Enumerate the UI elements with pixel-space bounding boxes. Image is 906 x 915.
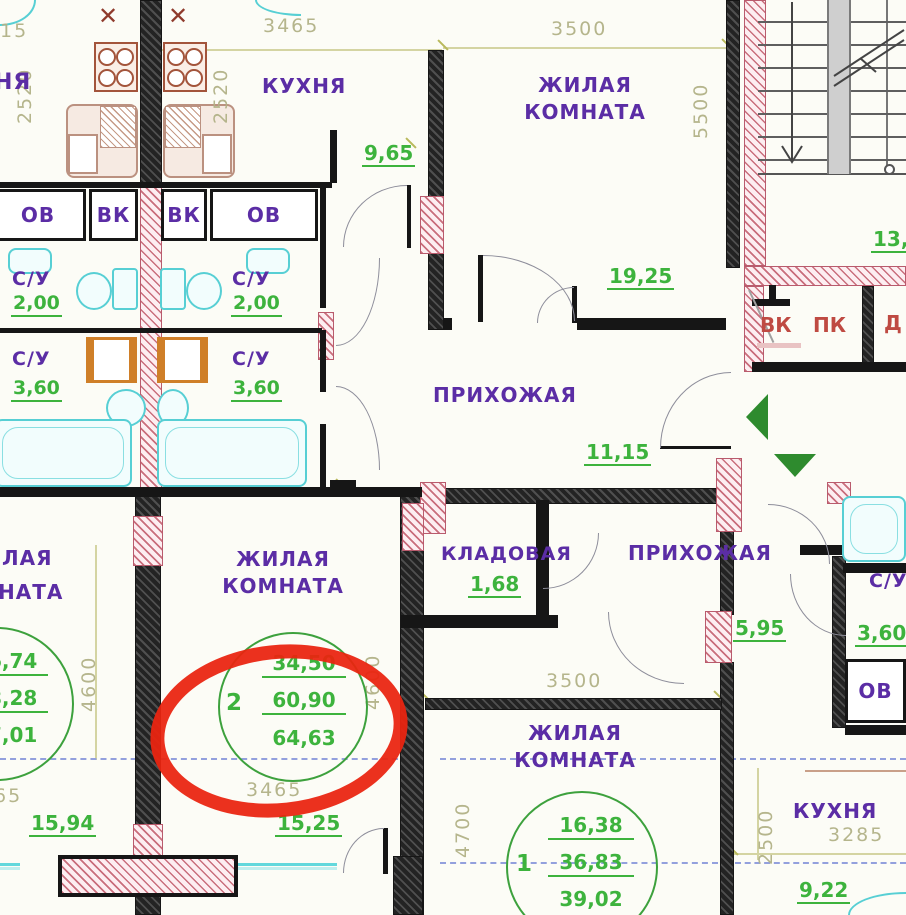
shaft-label: ОВ bbox=[858, 679, 892, 703]
apartment-number: 1 bbox=[516, 851, 532, 877]
room-label-su-right: С/У bbox=[869, 570, 906, 592]
dimension-value: 3285 bbox=[828, 824, 884, 846]
dimension-value: 65 bbox=[0, 785, 22, 807]
room-label-line: ЖИЛАЯ bbox=[538, 72, 632, 99]
dimension-value: 2520 bbox=[210, 44, 232, 124]
wall bbox=[752, 362, 906, 372]
stamp-value: 7,01 bbox=[0, 724, 48, 748]
area-value: 3,60 bbox=[11, 379, 62, 402]
room-label-line: КОМНАТА bbox=[524, 99, 646, 126]
room-label-living-left-partial: ЛАЯ bbox=[2, 546, 53, 570]
wall bbox=[330, 130, 337, 183]
door-arc bbox=[343, 828, 384, 873]
area-value: 15,94 bbox=[29, 813, 96, 837]
dimension-line bbox=[443, 47, 733, 49]
door-arc bbox=[608, 612, 684, 684]
area-value: 11,15 bbox=[584, 442, 651, 466]
room-label-kitchen: КУХНЯ bbox=[262, 74, 346, 98]
shaft-box-vk: ВК bbox=[161, 189, 207, 241]
corner-sink-symbol bbox=[848, 892, 906, 915]
wall bbox=[444, 488, 722, 504]
stamp-value: 16,38 bbox=[548, 814, 634, 840]
bathtub-symbol bbox=[157, 419, 307, 487]
wall bbox=[0, 487, 422, 497]
wall bbox=[720, 662, 734, 915]
door-arc bbox=[790, 574, 846, 636]
stair-direction-arrow bbox=[772, 0, 812, 180]
window-sill bbox=[0, 863, 20, 866]
wall bbox=[425, 698, 722, 710]
pilaster bbox=[133, 516, 163, 566]
room-label-su: С/У bbox=[232, 268, 271, 290]
shaft-box-ov: ОВ bbox=[0, 189, 86, 241]
toilet-symbol bbox=[186, 272, 222, 310]
bathtub-symbol bbox=[0, 419, 132, 487]
wall bbox=[769, 285, 776, 305]
pilaster bbox=[705, 611, 732, 663]
stamp-value: 6,74 bbox=[0, 650, 48, 676]
dimension-value: 3500 bbox=[546, 670, 602, 692]
door-arc bbox=[660, 372, 731, 448]
shaft-label: ОВ bbox=[21, 203, 55, 227]
room-label-su: С/У bbox=[12, 268, 51, 290]
dimension-value: 3500 bbox=[551, 18, 607, 40]
shaft-label: ВК bbox=[97, 203, 131, 227]
wall-window-block bbox=[58, 855, 238, 897]
pilaster bbox=[716, 458, 742, 532]
door-arc bbox=[336, 386, 380, 470]
wall bbox=[0, 328, 322, 333]
stamp-value: 36,83 bbox=[548, 851, 634, 877]
washer-symbol bbox=[157, 337, 208, 383]
dimension-value: 3465 bbox=[263, 15, 319, 37]
stove-symbol bbox=[163, 42, 207, 92]
door-arc bbox=[336, 258, 380, 346]
area-value: 9,22 bbox=[797, 880, 850, 904]
dimension-value: 2500 bbox=[755, 783, 777, 865]
stamp-value: 39,02 bbox=[548, 888, 634, 912]
stove-symbol bbox=[94, 42, 138, 92]
room-label-living-center: ЖИЛАЯ КОМНАТА bbox=[218, 546, 348, 600]
toilet-tank-symbol bbox=[112, 268, 138, 310]
dimension-value: 15 bbox=[0, 20, 28, 42]
room-label-living-left-partial: НАТА bbox=[0, 580, 63, 604]
area-value: 5,95 bbox=[733, 618, 786, 642]
door-arc bbox=[768, 504, 830, 564]
shaft-box-ov: ОВ bbox=[210, 189, 318, 241]
area-value: 3,60 bbox=[231, 379, 282, 402]
wall bbox=[845, 725, 906, 735]
room-label-hall-top: ПРИХОЖАЯ bbox=[433, 383, 577, 407]
stair-break-lines bbox=[832, 14, 906, 92]
room-label-su: С/У bbox=[12, 348, 51, 370]
wall bbox=[140, 0, 162, 186]
area-value: 1,68 bbox=[468, 574, 521, 598]
counter-edge bbox=[805, 770, 906, 772]
room-label-kitchen-partial: НЯ bbox=[0, 70, 31, 95]
dimension-value: 5500 bbox=[690, 55, 712, 139]
shaft-box-vk: ВК bbox=[89, 189, 138, 241]
window-sill bbox=[237, 863, 337, 866]
vent-cross-mark: ✕ bbox=[98, 2, 118, 30]
wall bbox=[428, 50, 444, 330]
room-label-hall-bottom: ПРИХОЖАЯ bbox=[628, 541, 772, 565]
wall bbox=[444, 318, 452, 330]
door-leaf bbox=[407, 185, 411, 248]
stamp-value: 8,28 bbox=[0, 687, 48, 713]
vent-cross-mark: ✕ bbox=[168, 2, 188, 30]
room-label-line: ЖИЛАЯ bbox=[528, 720, 622, 747]
wall bbox=[0, 182, 332, 188]
door-leaf bbox=[538, 503, 543, 534]
kitchen-sink-symbol bbox=[68, 134, 98, 174]
shaft-label: ВК bbox=[167, 203, 201, 227]
room-label-su: С/У bbox=[232, 348, 271, 370]
dimension-value: 4600 bbox=[78, 634, 100, 712]
label-underline bbox=[757, 343, 801, 348]
room-label-living-top: ЖИЛАЯ КОМНАТА bbox=[505, 72, 665, 126]
pilaster bbox=[420, 196, 444, 254]
counter-hatch bbox=[165, 106, 201, 148]
area-value: 3,60 bbox=[855, 623, 906, 647]
shaft-label-d: Д bbox=[884, 311, 902, 335]
room-label-line: КОМНАТА bbox=[222, 573, 344, 600]
wall bbox=[862, 286, 874, 364]
wall bbox=[393, 856, 423, 915]
area-value: 9,65 bbox=[362, 143, 415, 167]
toilet-symbol bbox=[76, 272, 112, 310]
door-arc bbox=[343, 185, 407, 247]
area-value: 19,25 bbox=[607, 266, 674, 290]
wall-hatched bbox=[744, 266, 906, 286]
room-label-pantry: КЛАДОВАЯ bbox=[441, 543, 572, 565]
direction-triangle bbox=[774, 454, 816, 477]
wall bbox=[726, 0, 740, 268]
floor-plan: ОВ ВК ВК ОВ ОВ ✕ ✕ bbox=[0, 0, 906, 915]
wall bbox=[330, 480, 356, 489]
bathtub-symbol bbox=[842, 496, 906, 562]
direction-triangle bbox=[746, 394, 768, 440]
shaft-box-ov: ОВ bbox=[845, 659, 906, 723]
shaft-label-pk: ПК bbox=[813, 313, 846, 337]
room-label-living-bottom: ЖИЛАЯ КОМНАТА bbox=[510, 720, 640, 774]
counter-hatch bbox=[100, 106, 136, 148]
area-value: 2,00 bbox=[231, 294, 282, 317]
room-label-kitchen-br: КУХНЯ bbox=[793, 799, 877, 823]
toilet-tank-symbol bbox=[160, 268, 186, 310]
room-label-line: КОМНАТА bbox=[514, 747, 636, 774]
wall bbox=[400, 615, 558, 628]
room-label-line: ЖИЛАЯ bbox=[236, 546, 330, 573]
wall bbox=[320, 424, 326, 488]
wall bbox=[320, 182, 326, 308]
area-value: 2,00 bbox=[11, 294, 62, 317]
stair-handrail-end bbox=[884, 164, 895, 175]
wall bbox=[320, 330, 326, 392]
shaft-label-vk: ВК bbox=[760, 313, 792, 337]
shaft-label: ОВ bbox=[247, 203, 281, 227]
area-value: 13,5 bbox=[871, 229, 906, 253]
wall bbox=[577, 318, 726, 330]
corner-sink-symbol bbox=[255, 0, 301, 16]
kitchen-sink-symbol bbox=[202, 134, 232, 174]
washer-symbol bbox=[86, 337, 137, 383]
dimension-value: 4700 bbox=[452, 776, 474, 858]
pilaster bbox=[402, 503, 424, 551]
